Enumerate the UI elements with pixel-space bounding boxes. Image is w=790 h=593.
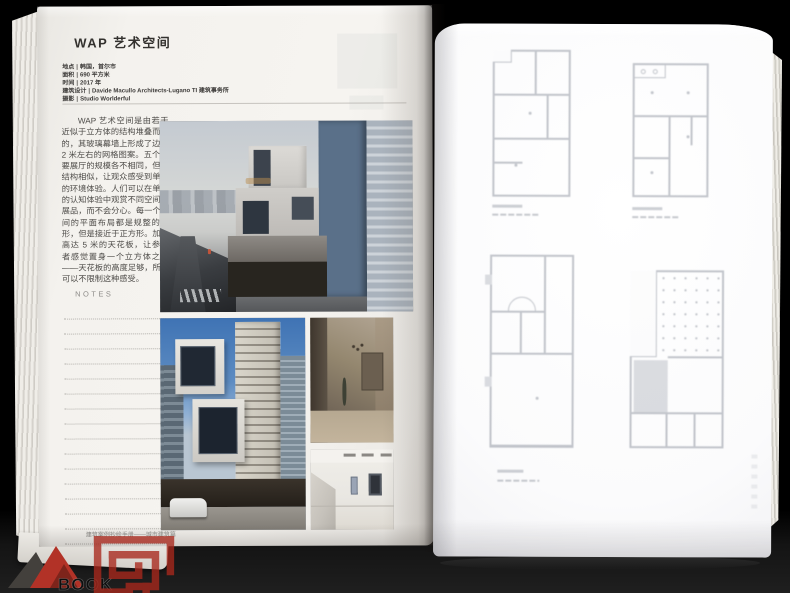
photo-lobby-interior — [310, 317, 393, 442]
notes-dotted-line — [65, 514, 167, 529]
grid-window — [198, 407, 237, 454]
notes-heading: NOTES — [75, 289, 113, 298]
building-base-shadow — [228, 262, 327, 297]
plan-scale-bar — [492, 214, 538, 216]
plan-caption — [497, 470, 523, 473]
notes-dotted-line — [65, 439, 167, 454]
office-tower — [367, 120, 413, 311]
floor-plan-3 — [489, 255, 574, 448]
project-info-block: 地点|韩国，首尔市 面积|690 平方米 时间|2017 年 建筑设计|Davi… — [62, 63, 229, 104]
floor-plan-4 — [629, 270, 724, 448]
notes-dotted-line — [64, 334, 166, 349]
stone-floor — [310, 410, 393, 443]
faint-margin-text — [751, 455, 757, 515]
artwork — [351, 477, 359, 495]
distant-skyline — [160, 190, 241, 213]
plan-scale-bar — [497, 480, 539, 482]
chandelier — [347, 333, 369, 361]
photo-building-day-facade — [160, 318, 306, 531]
plan-scale-bar — [632, 216, 678, 218]
left-page: WAP 艺术空间 地点|韩国，首尔市 面积|690 平方米 时间|2017 年 … — [37, 5, 434, 546]
page-showthrough — [337, 33, 397, 88]
white-car — [169, 498, 207, 517]
plant — [342, 378, 346, 406]
info-line-architect: 建筑设计|Davide Macullo Architects-Lugano TI… — [62, 87, 229, 96]
notes-dotted-line — [65, 469, 167, 484]
photo-building-dusk-aerial — [159, 120, 413, 312]
ceiling-light-slot — [380, 453, 392, 456]
notes-dotted-line — [65, 484, 167, 499]
notes-dotted-line — [64, 349, 166, 364]
photo-gallery-interior — [311, 449, 394, 529]
body-paragraph: WAP 艺术空间是由若干近似于立方体的结构堆叠而成的，其玻璃幕墙上形成了边长 2… — [61, 115, 169, 285]
red-maze-seal-watermark — [92, 534, 176, 593]
notes-dotted-line — [64, 379, 166, 394]
notes-dotted-line — [64, 304, 166, 319]
plan-caption — [632, 207, 662, 210]
notes-dotted-line — [65, 499, 167, 514]
rear-tower — [281, 356, 306, 488]
notes-dotted-line — [65, 424, 167, 439]
notes-lines — [64, 304, 167, 544]
notes-dotted-line — [64, 364, 166, 379]
window — [243, 201, 268, 234]
floor-plan-2 — [632, 63, 708, 197]
page-title: WAP 艺术空间 — [74, 32, 171, 51]
page-showthrough — [349, 95, 383, 109]
notes-dotted-line — [65, 454, 167, 469]
car-taillight — [208, 249, 211, 254]
notes-dotted-line — [64, 319, 166, 334]
signage-glow — [246, 178, 271, 184]
floor-plans-showthrough — [433, 23, 773, 557]
artwork-dark-frame — [369, 473, 382, 495]
notes-dotted-line — [64, 409, 166, 424]
crosswalk — [180, 289, 221, 303]
grid-window — [181, 346, 216, 386]
ceiling-light-slot — [362, 454, 374, 457]
floor-plan-1 — [492, 50, 571, 197]
notes-dotted-line — [64, 394, 166, 409]
window — [291, 197, 314, 220]
ceiling-light-slot — [344, 454, 356, 457]
book-product-photo: WAP 艺术空间 地点|韩国，首尔市 面积|690 平方米 时间|2017 年 … — [0, 0, 790, 593]
table-reflection — [440, 556, 760, 570]
right-page-vellum — [433, 23, 773, 557]
plan-caption — [492, 205, 522, 208]
